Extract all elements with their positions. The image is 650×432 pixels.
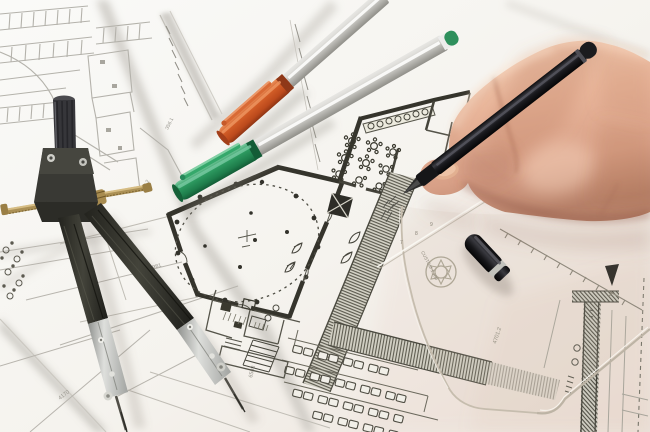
svg-text:7: 7 — [400, 240, 403, 246]
svg-text:5: 5 — [370, 258, 373, 264]
svg-text:9: 9 — [430, 222, 433, 228]
svg-text:8: 8 — [415, 231, 418, 237]
svg-text:6: 6 — [385, 249, 388, 255]
